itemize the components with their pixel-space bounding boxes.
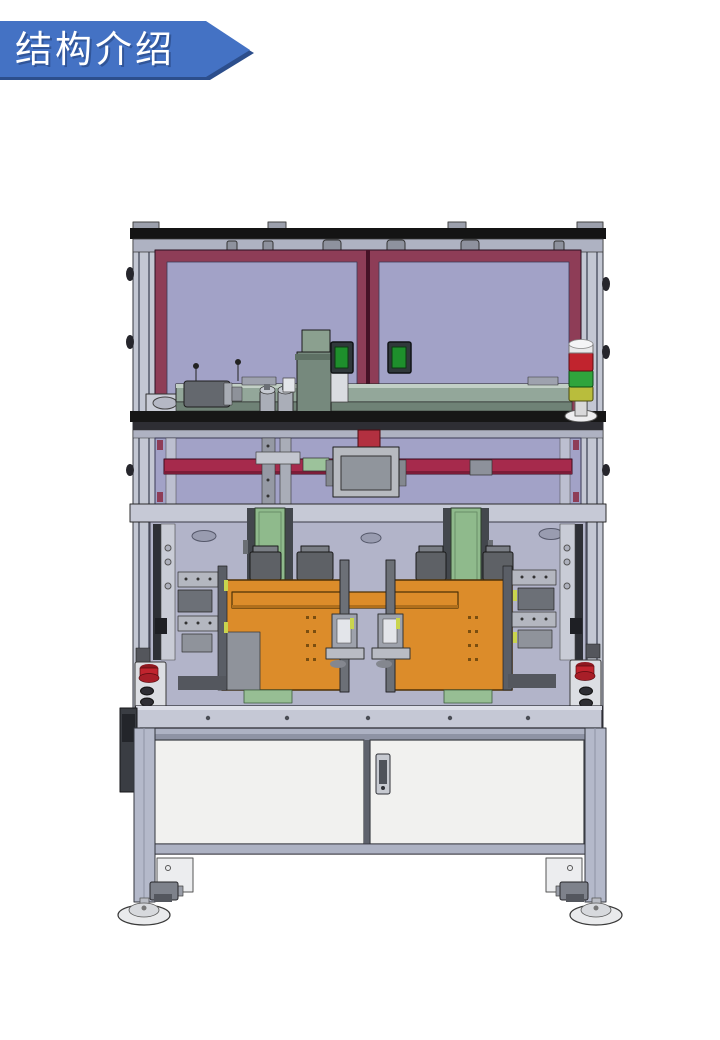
tower-light-green <box>569 370 593 387</box>
cabinet-door-left <box>152 740 364 844</box>
axis-motor <box>184 381 230 407</box>
z-axis-top-block <box>302 330 330 354</box>
tower-light-yellow <box>569 386 593 401</box>
tower-pole <box>575 400 587 416</box>
sensor-window-left <box>331 342 353 373</box>
estop-panel-left <box>135 662 166 710</box>
green-base-strip-left <box>244 690 292 703</box>
leveling-foot-left <box>118 898 170 925</box>
green-base-strip-right <box>444 690 492 703</box>
presentation-slide: 结构介绍 结构介绍 <box>0 0 720 1040</box>
mid-bottom-beam <box>130 504 606 522</box>
slide-canvas: 结构介绍 结构介绍 <box>0 0 720 1040</box>
work-table-section <box>135 508 602 732</box>
top-black-beam <box>130 228 606 239</box>
leveling-foot-right <box>570 898 622 925</box>
estop-panel-right <box>570 660 601 710</box>
z-axis-column <box>297 352 331 414</box>
door-handle <box>376 754 390 794</box>
sensor-window-right <box>388 342 411 373</box>
mid-control-box <box>326 447 406 497</box>
title-banner: 结构介绍 结构介绍 <box>0 21 254 80</box>
top-enclosure-section <box>130 222 606 422</box>
tower-light-red <box>569 352 593 371</box>
slide-title: 结构介绍 <box>15 29 175 71</box>
base-cabinet <box>120 708 600 854</box>
machine-front-view <box>118 222 622 925</box>
mid-actuator-section <box>130 422 606 522</box>
cabinet-door-right <box>370 740 584 844</box>
section-divider-beam <box>130 411 606 422</box>
